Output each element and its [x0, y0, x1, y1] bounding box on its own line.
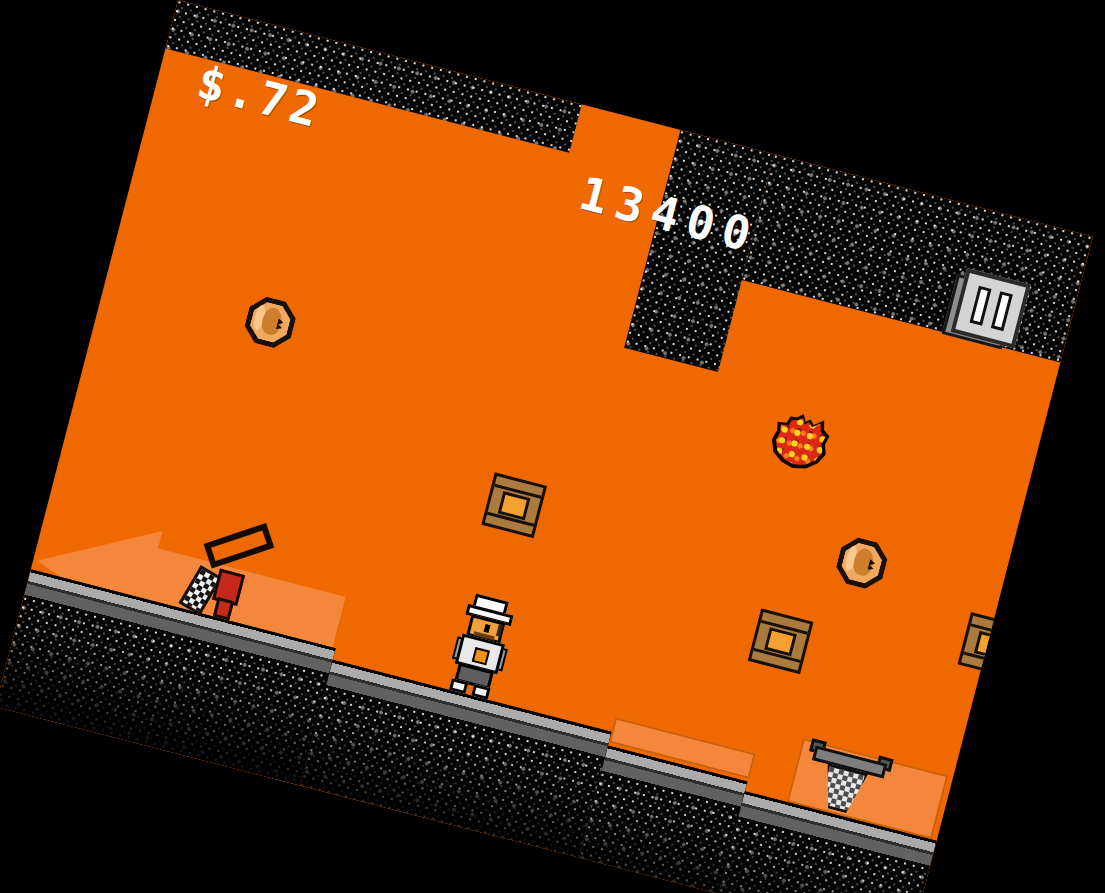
coin [833, 534, 891, 592]
game-canvas[interactable]: $.72 13400 [0, 0, 1093, 893]
ceiling-block-right [742, 154, 1093, 362]
chainsaw-foot [213, 597, 234, 621]
crate [481, 472, 547, 538]
fire-enemy [766, 407, 835, 477]
chainsaw-blade [203, 523, 274, 569]
screenshot-stage: $.72 13400 [0, 0, 1105, 893]
crate [957, 612, 1023, 678]
crate [748, 608, 814, 674]
player-character [444, 592, 523, 703]
coin [241, 293, 299, 351]
